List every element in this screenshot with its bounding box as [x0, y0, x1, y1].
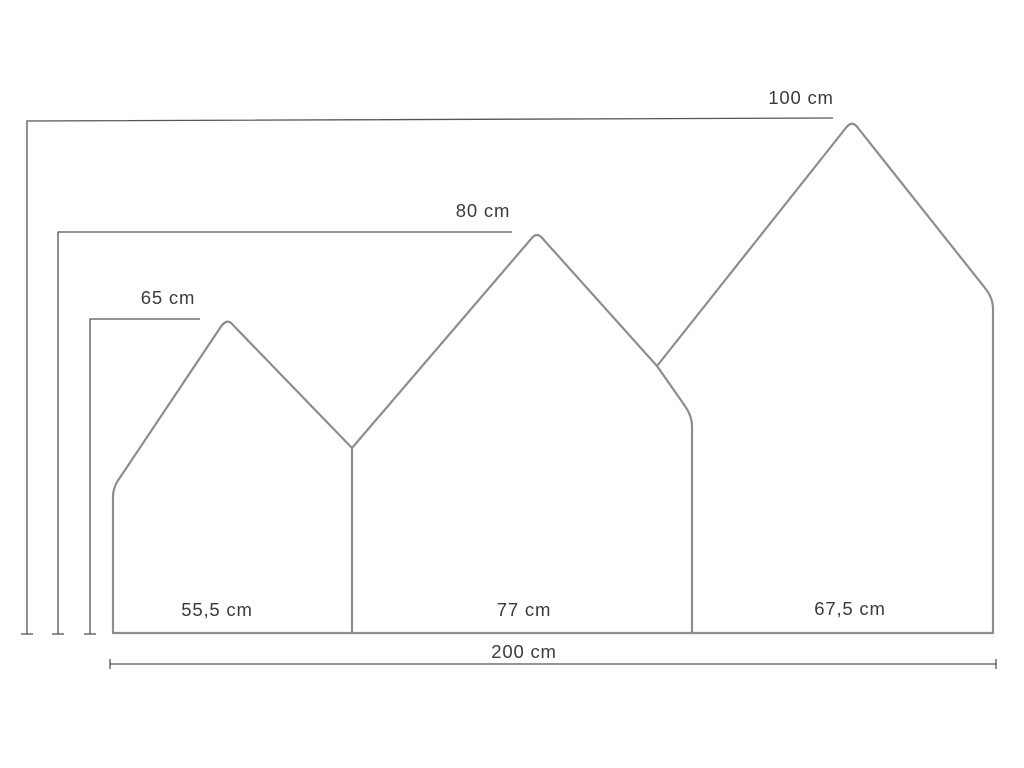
house-left-outline — [113, 322, 352, 633]
label-height-100: 100 cm — [768, 87, 833, 108]
label-width-right: 67,5 cm — [814, 598, 885, 619]
label-width-total: 200 cm — [491, 641, 556, 662]
label-width-left: 55,5 cm — [181, 599, 252, 620]
label-height-80: 80 cm — [456, 200, 510, 221]
dim-line-height-100 — [27, 118, 833, 634]
headboard-dimension-diagram: 100 cm 80 cm 65 cm 55,5 cm 77 cm 67,5 cm… — [0, 0, 1024, 768]
label-width-middle: 77 cm — [497, 599, 551, 620]
diagram-svg: 100 cm 80 cm 65 cm 55,5 cm 77 cm 67,5 cm… — [0, 0, 1024, 768]
dim-line-height-80 — [58, 232, 512, 634]
dim-line-height-65 — [90, 319, 200, 634]
label-height-65: 65 cm — [141, 287, 195, 308]
house-right-outline — [657, 124, 993, 633]
house-middle-outline — [352, 235, 692, 633]
